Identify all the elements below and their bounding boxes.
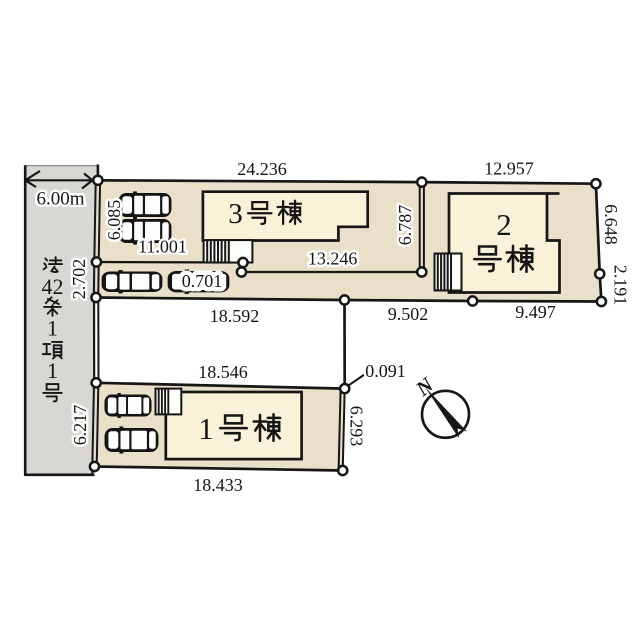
svg-text:42: 42 bbox=[42, 274, 64, 299]
svg-text:2.191: 2.191 bbox=[611, 265, 631, 306]
svg-text:2: 2 bbox=[496, 207, 512, 242]
svg-text:24.236: 24.236 bbox=[237, 159, 287, 179]
svg-text:9.502: 9.502 bbox=[388, 304, 429, 324]
svg-text:3: 3 bbox=[228, 198, 243, 230]
svg-text:18.592: 18.592 bbox=[210, 306, 260, 326]
svg-text:1: 1 bbox=[47, 316, 58, 341]
svg-text:6.648: 6.648 bbox=[601, 204, 621, 245]
svg-text:0.701: 0.701 bbox=[182, 271, 223, 291]
svg-text:6.217: 6.217 bbox=[70, 405, 90, 446]
svg-text:6.00m: 6.00m bbox=[36, 189, 84, 210]
svg-text:13.246: 13.246 bbox=[308, 249, 358, 269]
svg-text:1: 1 bbox=[47, 358, 58, 383]
svg-text:12.957: 12.957 bbox=[484, 159, 534, 179]
svg-text:18.433: 18.433 bbox=[193, 475, 243, 495]
svg-text:6.787: 6.787 bbox=[395, 205, 415, 246]
svg-text:9.497: 9.497 bbox=[515, 302, 556, 322]
svg-text:2.702: 2.702 bbox=[69, 259, 89, 300]
svg-text:18.546: 18.546 bbox=[198, 362, 248, 382]
svg-text:1: 1 bbox=[198, 411, 214, 446]
svg-text:11.001: 11.001 bbox=[138, 237, 187, 257]
svg-text:0.091: 0.091 bbox=[365, 361, 406, 381]
svg-text:6.293: 6.293 bbox=[347, 406, 367, 447]
svg-text:6.085: 6.085 bbox=[104, 200, 124, 241]
